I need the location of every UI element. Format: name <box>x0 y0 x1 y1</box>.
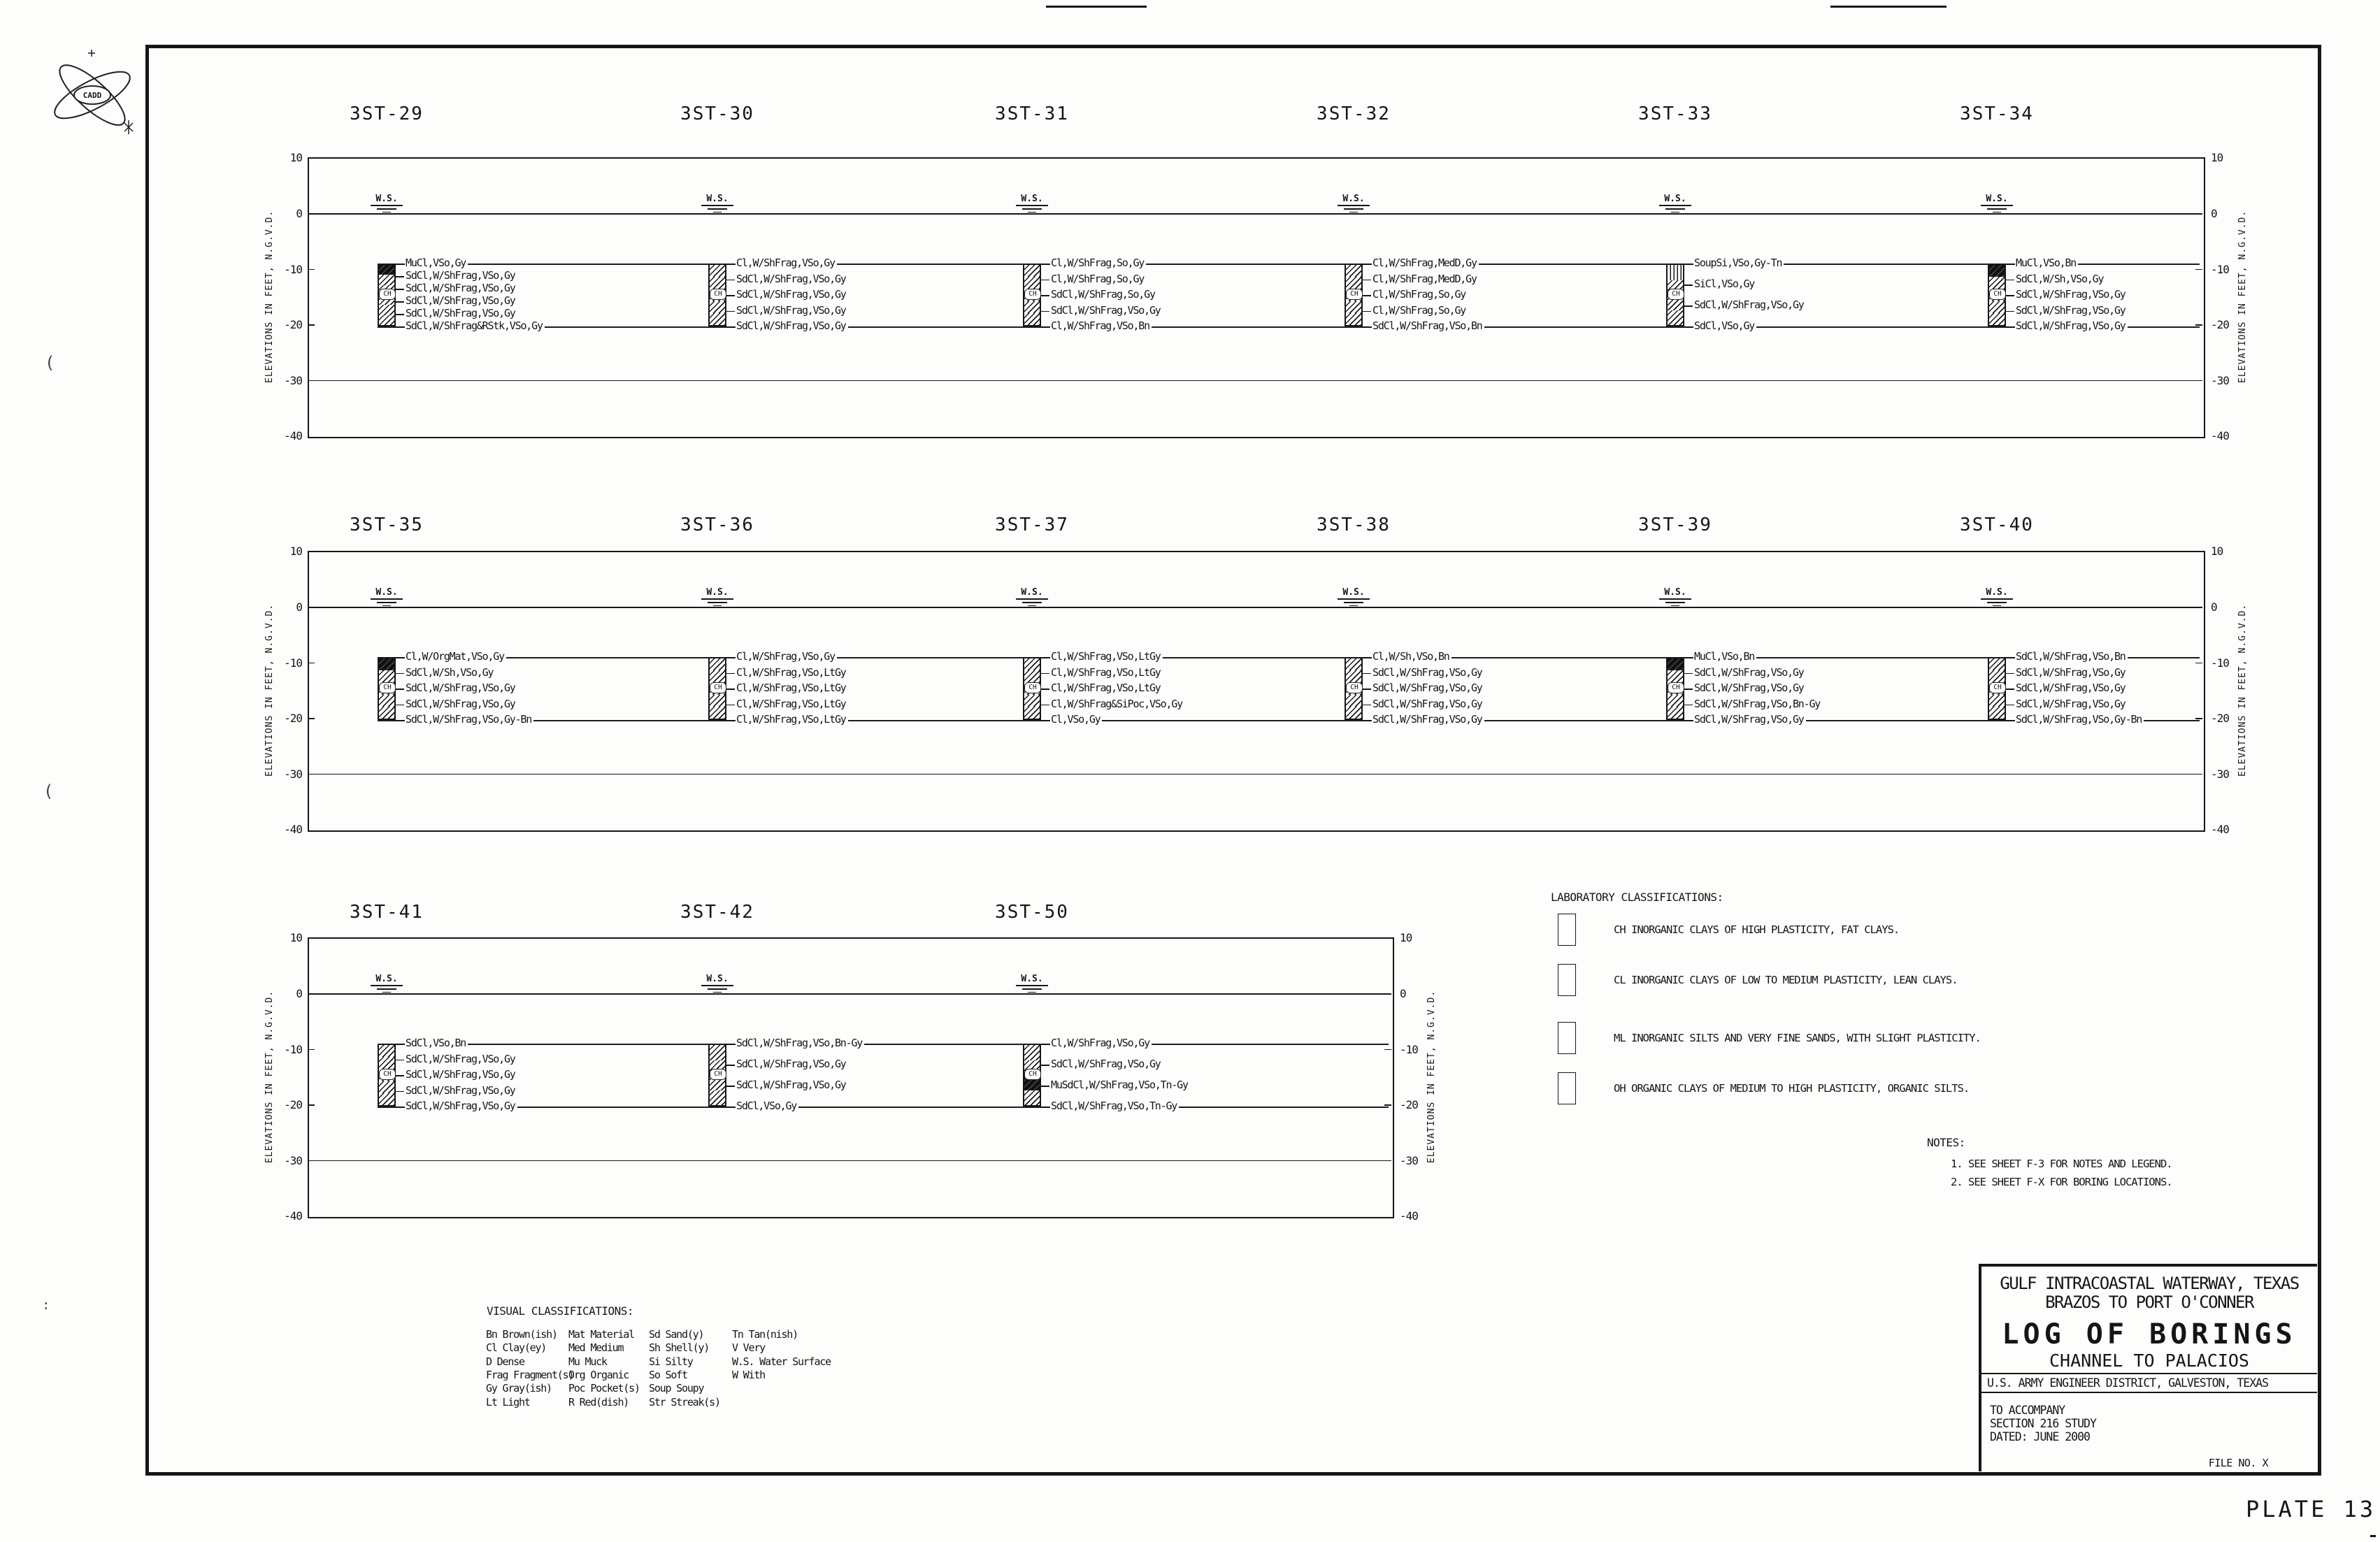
stratum-correlation-line-bottom <box>378 326 2200 328</box>
layer-description: Cl,W/ShFrag,MedD,Gy <box>1372 257 1479 269</box>
lab-legend-swatch-ml <box>1558 1022 1576 1054</box>
layer-leader-line <box>2006 720 2014 721</box>
layer-leader-line <box>726 657 735 658</box>
axis-tick <box>308 1049 315 1051</box>
water-surface-label: W.S. <box>1659 195 1691 203</box>
water-surface-symbol: W.S. <box>371 975 403 993</box>
layer-description: SdCl,W/ShFrag,VSo,Gy <box>736 320 848 332</box>
water-surface-line <box>701 598 733 600</box>
layer-description: SdCl,W/ShFrag,VSo,Gy <box>2015 682 2128 694</box>
title-block-project-line1: GULF INTRACOASTAL WATERWAY, TEXAS <box>1981 1274 2317 1293</box>
scan-speck: ( <box>45 353 55 373</box>
lab-legend-swatch-ch <box>1558 914 1576 946</box>
layer-description: SdCl,W/ShFrag,VSo,Bn-Gy <box>1693 698 1822 710</box>
layer-leader-line <box>396 1044 404 1045</box>
title-block-rule <box>1981 1392 2317 1393</box>
column-classification-badge: CH <box>1668 289 1684 300</box>
layer-leader-line <box>1363 689 1371 690</box>
layer-leader-line <box>396 689 404 690</box>
layer-leader-line <box>2006 295 2014 296</box>
layer-description: SdCl,W/ShFrag,VSo,Gy <box>736 1079 848 1091</box>
water-surface-line <box>1016 598 1048 600</box>
title-block-accompany-2: SECTION 216 STUDY <box>1990 1417 2096 1430</box>
layer-description: Cl,W/ShFrag,VSo,LtGy <box>736 698 848 710</box>
water-surface-line <box>1022 208 1042 210</box>
water-surface-label: W.S. <box>1338 589 1370 597</box>
layer-description: Cl,W/ShFrag,VSo,LtGy <box>736 714 848 726</box>
water-surface-label: W.S. <box>1981 195 2013 203</box>
water-surface-label: W.S. <box>1981 589 2013 597</box>
lithology-segment <box>1024 707 1040 719</box>
water-surface-label: W.S. <box>701 975 733 983</box>
water-surface-line <box>371 598 403 600</box>
lithology-segment <box>1346 670 1361 682</box>
lithology-segment <box>1989 301 2005 313</box>
water-surface-symbol: W.S. <box>1016 589 1048 606</box>
layer-leader-line <box>726 326 735 328</box>
lithology-segment <box>1989 707 2005 719</box>
boring-title-3ST-50: 3ST-50 <box>995 902 1069 923</box>
water-surface-label: W.S. <box>1016 975 1048 983</box>
layer-description: SdCl,W/ShFrag,VSo,Gy <box>405 1069 517 1081</box>
layer-description: SdCl,W/Sh,VSo,Gy <box>405 667 495 679</box>
layer-description: Cl,W/ShFrag&SiPoc,VSo,Gy <box>1050 698 1184 710</box>
water-surface-line <box>713 605 722 607</box>
water-surface-label: W.S. <box>701 589 733 597</box>
layer-description: SdCl,W/ShFrag,VSo,Gy <box>2015 305 2128 317</box>
axis-tick <box>308 718 315 719</box>
elevation-axis-title-left: ELEVATIONS IN FEET, N.G.V.D. <box>264 942 275 1211</box>
lithology-segment <box>710 1045 725 1060</box>
scan-speck: : <box>42 1297 50 1313</box>
visual-classification-item: Bn Brown(ish) <box>486 1328 557 1341</box>
boring-title-3ST-39: 3ST-39 <box>1638 514 1712 535</box>
layer-leader-line <box>1041 1086 1049 1087</box>
lithology-segment <box>1346 313 1361 325</box>
layer-leader-line <box>1684 264 1693 265</box>
waterline-gridline <box>308 213 2202 215</box>
layer-leader-line <box>1041 264 1049 265</box>
title-block-main-title: LOG OF BORINGS <box>1981 1318 2317 1350</box>
water-surface-symbol: W.S. <box>701 975 733 993</box>
water-surface-line <box>713 212 722 213</box>
layer-leader-line <box>396 705 404 706</box>
layer-leader-line <box>396 314 404 315</box>
lithology-segment <box>710 695 725 707</box>
water-surface-label: W.S. <box>1016 195 1048 203</box>
layer-leader-line <box>726 1086 735 1087</box>
drawing-sheet: ( ( : CADD 101000-10-10-20-20-30-30-40-4… <box>0 0 2380 1542</box>
layer-leader-line <box>726 673 735 675</box>
lithology-segment <box>379 658 394 670</box>
layer-description: SdCl,W/ShFrag,VSo,Gy <box>736 305 848 317</box>
layer-description: SdCl,W/ShFrag,VSo,Gy <box>2015 698 2128 710</box>
layer-leader-line <box>2006 705 2014 706</box>
lab-legend-text: OH ORGANIC CLAYS OF MEDIUM TO HIGH PLAST… <box>1614 1082 1969 1095</box>
water-surface-symbol: W.S. <box>1016 975 1048 993</box>
column-classification-badge: CH <box>1024 289 1041 300</box>
water-surface-line <box>1028 212 1036 213</box>
layer-leader-line <box>1041 1065 1049 1066</box>
lithology-segment <box>1024 301 1040 313</box>
elevation-axis-title-right: ELEVATIONS IN FEET, N.G.V.D. <box>2237 161 2248 431</box>
water-surface-line <box>1987 208 2007 210</box>
lithology-segment <box>1668 670 1683 682</box>
layer-leader-line <box>1041 1044 1049 1045</box>
visual-classification-item: Poc Pocket(s) <box>568 1382 640 1395</box>
layer-leader-line <box>2006 311 2014 312</box>
lithology-segment <box>710 1090 725 1106</box>
lithology-segment <box>1024 313 1040 325</box>
layer-description: SdCl,W/ShFrag,VSo,Bn <box>1372 320 1484 332</box>
water-surface-line <box>1987 602 2007 603</box>
elevation-label-right: -20 <box>2211 712 2229 725</box>
water-surface-label: W.S. <box>371 975 403 983</box>
layer-description: SdCl,VSo,Gy <box>736 1100 798 1112</box>
layer-description: Cl,W/ShFrag,VSo,LtGy <box>736 667 848 679</box>
layer-leader-line <box>726 295 735 296</box>
lithology-segment <box>1668 707 1683 719</box>
layer-description: SdCl,W/ShFrag,VSo,Gy <box>1693 714 1806 726</box>
lithology-segment <box>1346 301 1361 313</box>
boring-title-3ST-34: 3ST-34 <box>1960 103 2034 124</box>
layer-leader-line <box>726 705 735 706</box>
layer-description: SdCl,W/ShFrag,So,Gy <box>1050 289 1157 301</box>
layer-leader-line <box>1363 720 1371 721</box>
lab-legend-swatch-oh <box>1558 1072 1576 1104</box>
layer-description: Cl,W/ShFrag,VSo,LtGy <box>1050 651 1163 663</box>
lithology-segment <box>1989 658 2005 670</box>
axis-tick <box>308 269 315 271</box>
column-classification-badge: CH <box>1989 289 2006 300</box>
water-surface-line <box>713 992 722 993</box>
water-surface-line <box>1349 212 1358 213</box>
layer-description: Cl,W/ShFrag,So,Gy <box>1372 289 1468 301</box>
water-surface-symbol: W.S. <box>1016 195 1048 212</box>
layer-leader-line <box>1684 284 1693 286</box>
column-classification-badge: CH <box>1346 289 1363 300</box>
water-surface-line <box>1993 212 2001 213</box>
elevation-label-right: 10 <box>2211 545 2223 558</box>
lithology-segment <box>1668 265 1683 280</box>
boring-title-3ST-38: 3ST-38 <box>1317 514 1391 535</box>
lithology-segment <box>1989 265 2005 277</box>
layer-leader-line <box>2006 280 2014 281</box>
column-classification-badge: CH <box>710 682 726 693</box>
layer-description: SdCl,W/ShFrag,VSo,Gy <box>1372 682 1484 694</box>
title-block-subtitle: CHANNEL TO PALACIOS <box>1981 1350 2317 1371</box>
lab-legend-swatch-cl <box>1558 964 1576 996</box>
layer-description: SdCl,W/ShFrag,VSo,Gy <box>405 1085 517 1097</box>
water-surface-line <box>1671 212 1679 213</box>
water-surface-symbol: W.S. <box>1981 589 2013 606</box>
lithology-segment <box>1346 707 1361 719</box>
layer-leader-line <box>1363 280 1371 281</box>
visual-classification-item: W.S. Water Surface <box>732 1355 831 1369</box>
water-surface-symbol: W.S. <box>1338 195 1370 212</box>
layer-description: SdCl,W/ShFrag&RStk,VSo,Gy <box>405 320 545 332</box>
layer-description: SdCl,W/ShFrag,VSo,Gy <box>405 295 517 307</box>
layer-leader-line <box>1041 689 1049 690</box>
cadd-stamp: CADD <box>42 45 143 145</box>
layer-description: SdCl,W/ShFrag,VSo,Gy <box>405 682 517 694</box>
water-surface-line <box>1981 598 2013 600</box>
lithology-segment <box>379 315 394 325</box>
lithology-segment <box>1024 695 1040 707</box>
layer-description: SdCl,W/ShFrag,VSo,Gy <box>405 308 517 319</box>
water-surface-line <box>382 212 391 213</box>
layer-description: SdCl,W/ShFrag,VSo,Gy <box>2015 667 2128 679</box>
elevation-label-right: -20 <box>2211 318 2229 331</box>
layer-leader-line <box>2006 264 2014 265</box>
lithology-segment <box>379 1045 394 1057</box>
water-surface-line <box>377 208 396 210</box>
axis-tick <box>308 324 315 326</box>
layer-leader-line <box>1363 311 1371 312</box>
lithology-segment <box>1989 313 2005 325</box>
layer-description: Cl,W/Sh,VSo,Bn <box>1372 651 1451 663</box>
layer-leader-line <box>1363 264 1371 265</box>
layer-description: SdCl,W/ShFrag,VSo,Gy <box>736 1058 848 1070</box>
water-surface-label: W.S. <box>701 195 733 203</box>
layer-leader-line <box>1363 295 1371 296</box>
boring-title-3ST-30: 3ST-30 <box>680 103 754 124</box>
elevation-axis-title-left: ELEVATIONS IN FEET, N.G.V.D. <box>264 161 275 431</box>
lithology-segment <box>1024 670 1040 682</box>
stratum-correlation-line-bottom <box>378 1107 1389 1108</box>
column-classification-badge: CH <box>1024 1069 1041 1080</box>
water-surface-line <box>1022 602 1042 603</box>
water-surface-line <box>1344 208 1363 210</box>
lithology-segment <box>1024 1045 1040 1060</box>
axis-tick <box>2195 718 2202 719</box>
water-surface-label: W.S. <box>371 589 403 597</box>
cadd-label: CADD <box>83 91 102 100</box>
column-classification-badge: CH <box>1024 682 1041 693</box>
layer-leader-line <box>2006 689 2014 690</box>
visual-classification-item: Frag Fragment(s) <box>486 1369 573 1382</box>
layer-description: SiCl,VSo,Gy <box>1693 278 1756 290</box>
lithology-segment <box>379 265 394 275</box>
visual-classification-item: W With <box>732 1369 765 1382</box>
visual-classification-item: Sh Shell(y) <box>649 1341 709 1355</box>
lithology-segment <box>1989 695 2005 707</box>
layer-leader-line <box>396 1091 404 1093</box>
layer-leader-line <box>1041 295 1049 296</box>
layer-leader-line <box>1041 280 1049 281</box>
lithology-segment <box>1024 277 1040 289</box>
layer-leader-line <box>396 720 404 721</box>
layer-description: SdCl,W/ShFrag,VSo,Gy <box>405 282 517 294</box>
water-surface-symbol: W.S. <box>1659 195 1691 212</box>
note-item-1: 1. SEE SHEET F-3 FOR NOTES AND LEGEND. <box>1951 1158 2172 1170</box>
layer-description: SdCl,VSo,Gy <box>1693 320 1756 332</box>
layer-description: SdCl,W/ShFrag,VSo,Gy-Bn <box>405 714 533 726</box>
lithology-segment <box>1668 658 1683 670</box>
elevation-label-right: 0 <box>1400 987 1406 1000</box>
water-surface-line <box>1665 602 1685 603</box>
water-surface-label: W.S. <box>1659 589 1691 597</box>
layer-description: SoupSi,VSo,Gy-Tn <box>1693 257 1784 269</box>
layer-leader-line <box>396 326 404 328</box>
column-classification-badge: CH <box>1668 682 1684 693</box>
layer-leader-line <box>1363 326 1371 328</box>
waterline-gridline <box>308 993 1391 995</box>
water-surface-symbol: W.S. <box>371 589 403 606</box>
water-surface-line <box>701 205 733 206</box>
layer-leader-line <box>726 1044 735 1045</box>
layer-leader-line <box>726 264 735 265</box>
layer-leader-line <box>396 1075 404 1076</box>
layer-leader-line <box>1684 720 1693 721</box>
note-item-2: 2. SEE SHEET F-X FOR BORING LOCATIONS. <box>1951 1176 2172 1188</box>
layer-description: SdCl,W/ShFrag,VSo,Gy <box>2015 320 2128 332</box>
layer-description: SdCl,W/ShFrag,VSo,Gy <box>1693 299 1806 311</box>
water-surface-line <box>708 602 727 603</box>
elevation-axis-title-left: ELEVATIONS IN FEET, N.G.V.D. <box>264 555 275 825</box>
water-surface-symbol: W.S. <box>371 195 403 212</box>
elevation-label-right: -40 <box>1400 1209 1418 1223</box>
water-surface-line <box>1338 205 1370 206</box>
layer-description: MuSdCl,W/ShFrag,VSo,Tn-Gy <box>1050 1079 1190 1091</box>
layer-leader-line <box>1684 326 1693 328</box>
layer-description: SdCl,W/ShFrag,VSo,Tn-Gy <box>1050 1100 1179 1112</box>
lithology-segment <box>1024 1090 1040 1106</box>
layer-leader-line <box>1363 673 1371 675</box>
lithology-segment <box>379 695 394 707</box>
visual-classification-item: Gy Gray(ish) <box>486 1382 552 1395</box>
layer-description: SdCl,W/ShFrag,VSo,Gy <box>2015 289 2128 301</box>
layer-leader-line <box>1684 673 1693 675</box>
layer-leader-line <box>396 657 404 658</box>
layer-description: MuCl,VSo,Bn <box>2015 257 2078 269</box>
visual-classification-item: Cl Clay(ey) <box>486 1341 546 1355</box>
layer-leader-line <box>1041 673 1049 675</box>
layer-leader-line <box>726 1065 735 1066</box>
layer-description: SdCl,VSo,Bn <box>405 1037 468 1049</box>
layer-leader-line <box>1041 657 1049 658</box>
lithology-segment <box>1346 695 1361 707</box>
water-surface-line <box>371 985 403 986</box>
layer-leader-line <box>2006 673 2014 675</box>
layer-description: SdCl,W/ShFrag,VSo,Bn-Gy <box>736 1037 864 1049</box>
title-block-accompany-1: TO ACCOMPANY <box>1990 1404 2065 1417</box>
lab-legend-text: ML INORGANIC SILTS AND VERY FINE SANDS, … <box>1614 1032 1981 1044</box>
elevation-label-right: -10 <box>1400 1043 1418 1056</box>
water-surface-symbol: W.S. <box>701 195 733 212</box>
layer-leader-line <box>396 673 404 675</box>
column-classification-badge: CH <box>1989 682 2006 693</box>
elevation-axis-title-right: ELEVATIONS IN FEET, N.G.V.D. <box>2237 555 2248 825</box>
gridline-minus30 <box>308 380 2202 382</box>
layer-leader-line <box>1041 1107 1049 1108</box>
elevation-label-right: 10 <box>1400 931 1412 944</box>
water-surface-line <box>1671 605 1679 607</box>
lab-classifications-title: LABORATORY CLASSIFICATIONS: <box>1551 891 1723 904</box>
layer-description: Cl,W/ShFrag,VSo,LtGy <box>1050 667 1163 679</box>
visual-classification-item: D Dense <box>486 1355 524 1369</box>
layer-description: SdCl,W/ShFrag,VSo,Gy <box>405 1053 517 1065</box>
title-block-file-no: FILE NO. X <box>2209 1457 2268 1469</box>
water-surface-line <box>371 205 403 206</box>
water-surface-label: W.S. <box>1338 195 1370 203</box>
lithology-segment <box>1346 658 1361 670</box>
water-surface-line <box>1665 208 1685 210</box>
water-surface-line <box>377 988 396 990</box>
layer-description: SdCl,W/ShFrag,VSo,Gy <box>405 1100 517 1112</box>
visual-classification-item: So Soft <box>649 1369 687 1382</box>
layer-description: SdCl,W/ShFrag,VSo,Gy <box>1693 667 1806 679</box>
layer-leader-line <box>396 1060 404 1061</box>
lithology-segment <box>379 1093 394 1105</box>
elevation-label-right: -30 <box>1400 1154 1418 1167</box>
layer-description: SdCl,W/ShFrag,VSo,Gy <box>736 273 848 285</box>
lithology-segment <box>379 670 394 682</box>
water-surface-line <box>1022 988 1042 990</box>
water-surface-line <box>1016 205 1048 206</box>
column-classification-badge: CH <box>710 1069 726 1080</box>
lithology-segment <box>710 658 725 670</box>
water-surface-label: W.S. <box>371 195 403 203</box>
water-surface-symbol: W.S. <box>1981 195 2013 212</box>
layer-description: SdCl,W/ShFrag,VSo,Gy <box>1372 667 1484 679</box>
layer-description: SdCl,W/ShFrag,VSo,Bn <box>2015 651 2128 663</box>
boring-title-3ST-29: 3ST-29 <box>350 103 424 124</box>
elevation-label-right: -40 <box>2211 429 2229 442</box>
visual-classification-item: Org Organic <box>568 1369 629 1382</box>
layer-leader-line <box>2006 326 2014 328</box>
layer-leader-line <box>1041 705 1049 706</box>
elevation-label-right: -30 <box>2211 374 2229 387</box>
lithology-segment <box>710 265 725 277</box>
layer-description: MuCl,VSo,Bn <box>1693 651 1756 663</box>
layer-description: SdCl,W/ShFrag,VSo,Gy <box>1693 682 1806 694</box>
layer-leader-line <box>396 289 404 290</box>
layer-leader-line <box>726 1107 735 1108</box>
water-surface-line <box>1981 205 2013 206</box>
column-classification-badge: CH <box>379 1069 396 1080</box>
visual-classification-item: Si Silty <box>649 1355 693 1369</box>
elevation-label-left: -40 <box>267 429 302 442</box>
column-classification-badge: CH <box>710 289 726 300</box>
layer-description: MuCl,VSo,Gy <box>405 257 468 269</box>
water-surface-line <box>1028 605 1036 607</box>
visual-classifications-title: VISUAL CLASSIFICATIONS: <box>487 1304 633 1318</box>
elevation-label-left: -40 <box>267 1209 302 1223</box>
water-surface-line <box>1349 605 1358 607</box>
layer-description: Cl,W/ShFrag,VSo,Gy <box>736 651 837 663</box>
boring-title-3ST-41: 3ST-41 <box>350 902 424 923</box>
title-block-project-line2: BRAZOS TO PORT O'CONNER <box>1981 1292 2317 1312</box>
column-classification-badge: CH <box>379 289 396 300</box>
elevation-label-right: -10 <box>2211 656 2229 670</box>
stratum-correlation-line-top <box>378 264 2200 265</box>
layer-leader-line <box>726 311 735 312</box>
lithology-segment <box>379 305 394 315</box>
lithology-segment <box>710 670 725 682</box>
title-block: GULF INTRACOASTAL WATERWAY, TEXAS BRAZOS… <box>1979 1264 2317 1471</box>
column-classification-badge: CH <box>1346 682 1363 693</box>
layer-leader-line <box>396 264 404 265</box>
lithology-segment <box>710 277 725 289</box>
layer-leader-line <box>396 276 404 278</box>
layer-leader-line <box>396 301 404 303</box>
lithology-segment <box>1989 670 2005 682</box>
elevation-label-right: 0 <box>2211 207 2217 220</box>
elevation-panel-row1 <box>308 157 2205 438</box>
layer-leader-line <box>726 689 735 690</box>
lithology-segment <box>379 1081 394 1093</box>
